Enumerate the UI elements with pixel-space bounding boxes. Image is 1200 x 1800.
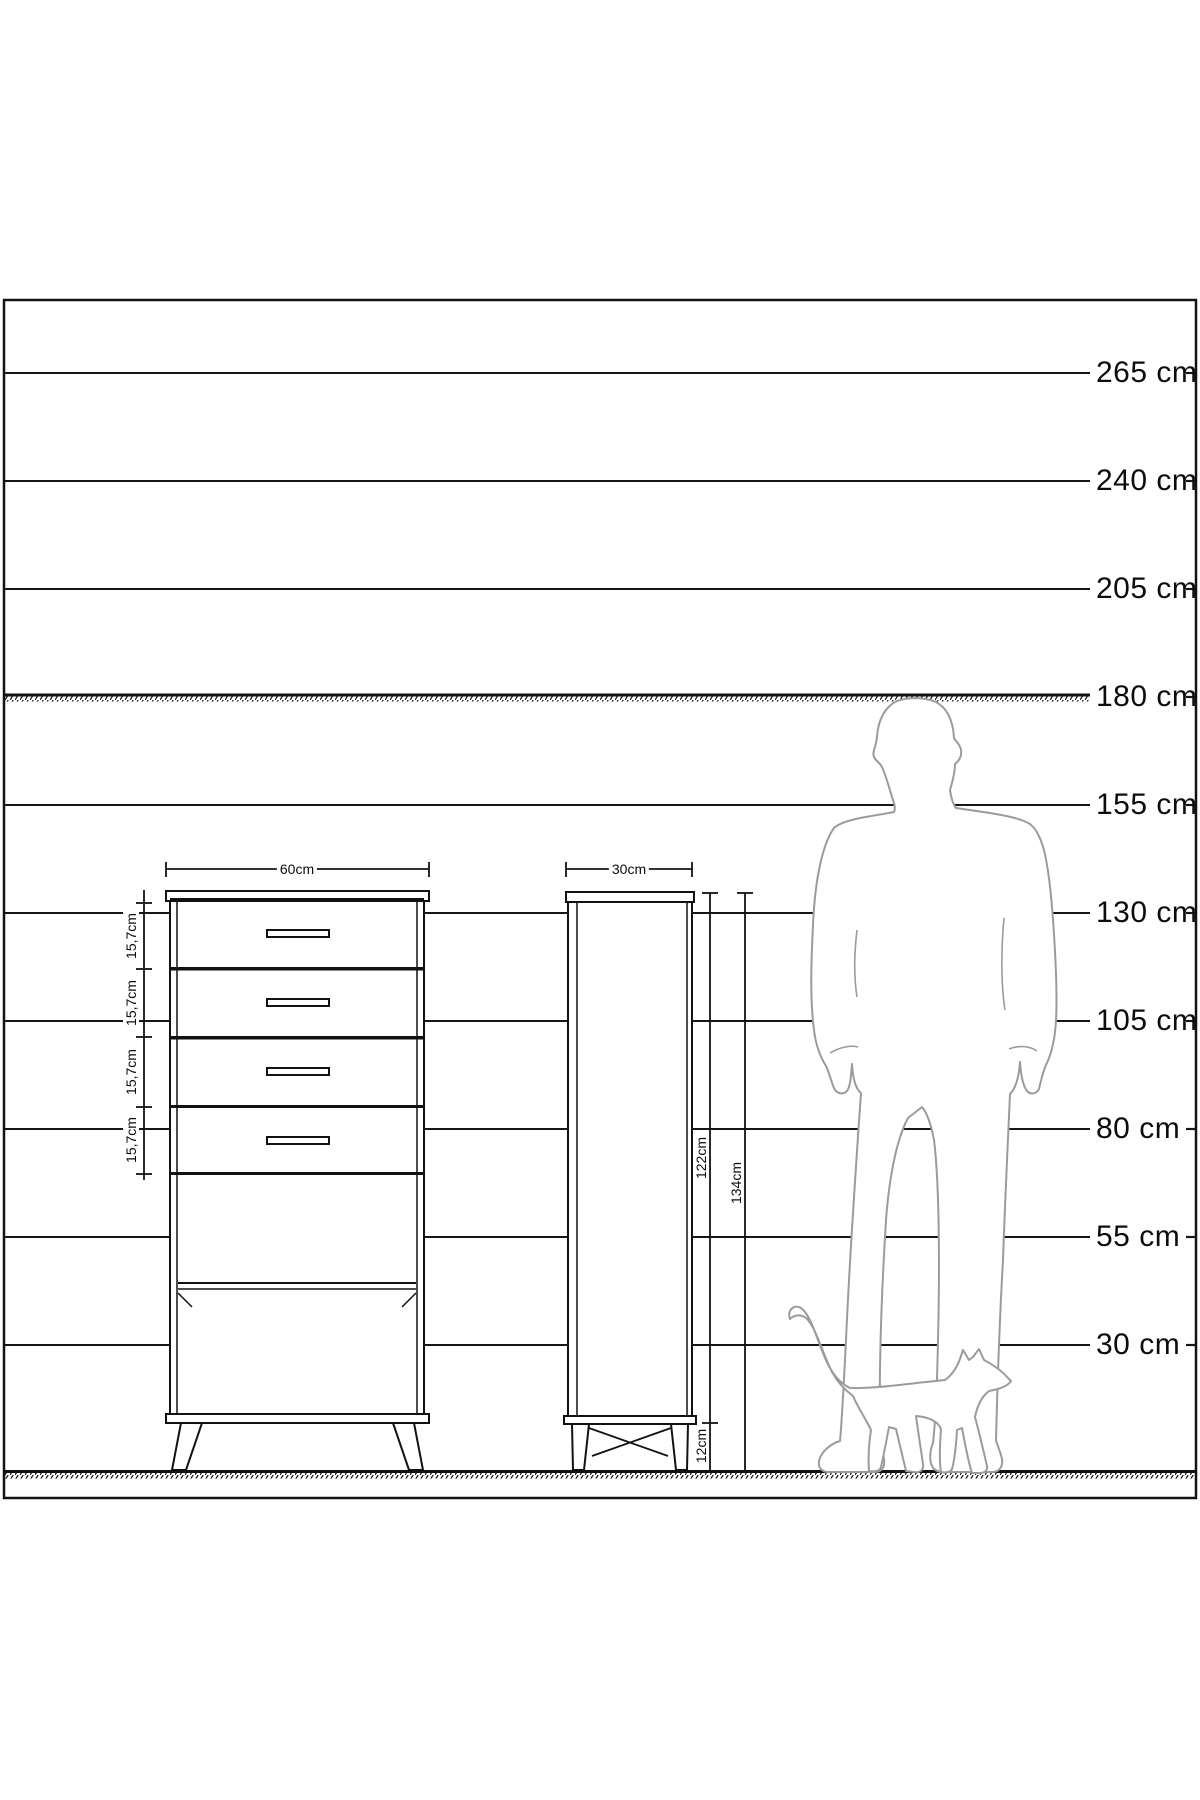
drawer-handle [267,1137,329,1144]
dresser-side-view [564,892,696,1470]
drawer-handle [267,930,329,937]
diagram-drawing [0,0,1200,1800]
scale-label-205: 205 cm [1096,574,1197,604]
scale-label-265: 265 cm [1096,358,1197,388]
scale-label-30: 30 cm [1096,1330,1180,1360]
drawer-handle [267,1068,329,1075]
scale-label-155: 155 cm [1096,790,1197,820]
drawer-height-label-3: 15,7cm [123,1046,139,1098]
front-width-label: 60cm [277,861,317,877]
dimension-diagram: 265 cm 240 cm 205 cm 180 cm 155 cm 130 c… [0,0,1200,1800]
scale-label-80: 80 cm [1096,1114,1180,1144]
front-leg [172,1423,202,1470]
dresser-front-view [166,891,429,1470]
body-height-label: 122cm [693,1134,709,1182]
drawer-height-label-1: 15,7cm [123,910,139,962]
man-silhouette-icon [811,698,1056,1472]
drawer-height-label-2: 15,7cm [123,977,139,1029]
scale-label-130: 130 cm [1096,898,1197,928]
drawer-height-label-4: 15,7cm [123,1114,139,1166]
ground-line-icon [4,1470,1196,1479]
side-leg [671,1424,688,1470]
scale-label-180: 180 cm [1096,682,1197,712]
drawer-handle [267,999,329,1006]
side-leg [572,1424,589,1470]
total-height-label: 134cm [728,1159,744,1207]
scale-label-240: 240 cm [1096,466,1197,496]
leg-height-label: 12cm [693,1426,709,1466]
front-leg [393,1423,423,1470]
scale-label-105: 105 cm [1096,1006,1197,1036]
scale-label-55: 55 cm [1096,1222,1180,1252]
side-depth-label: 30cm [609,861,649,877]
